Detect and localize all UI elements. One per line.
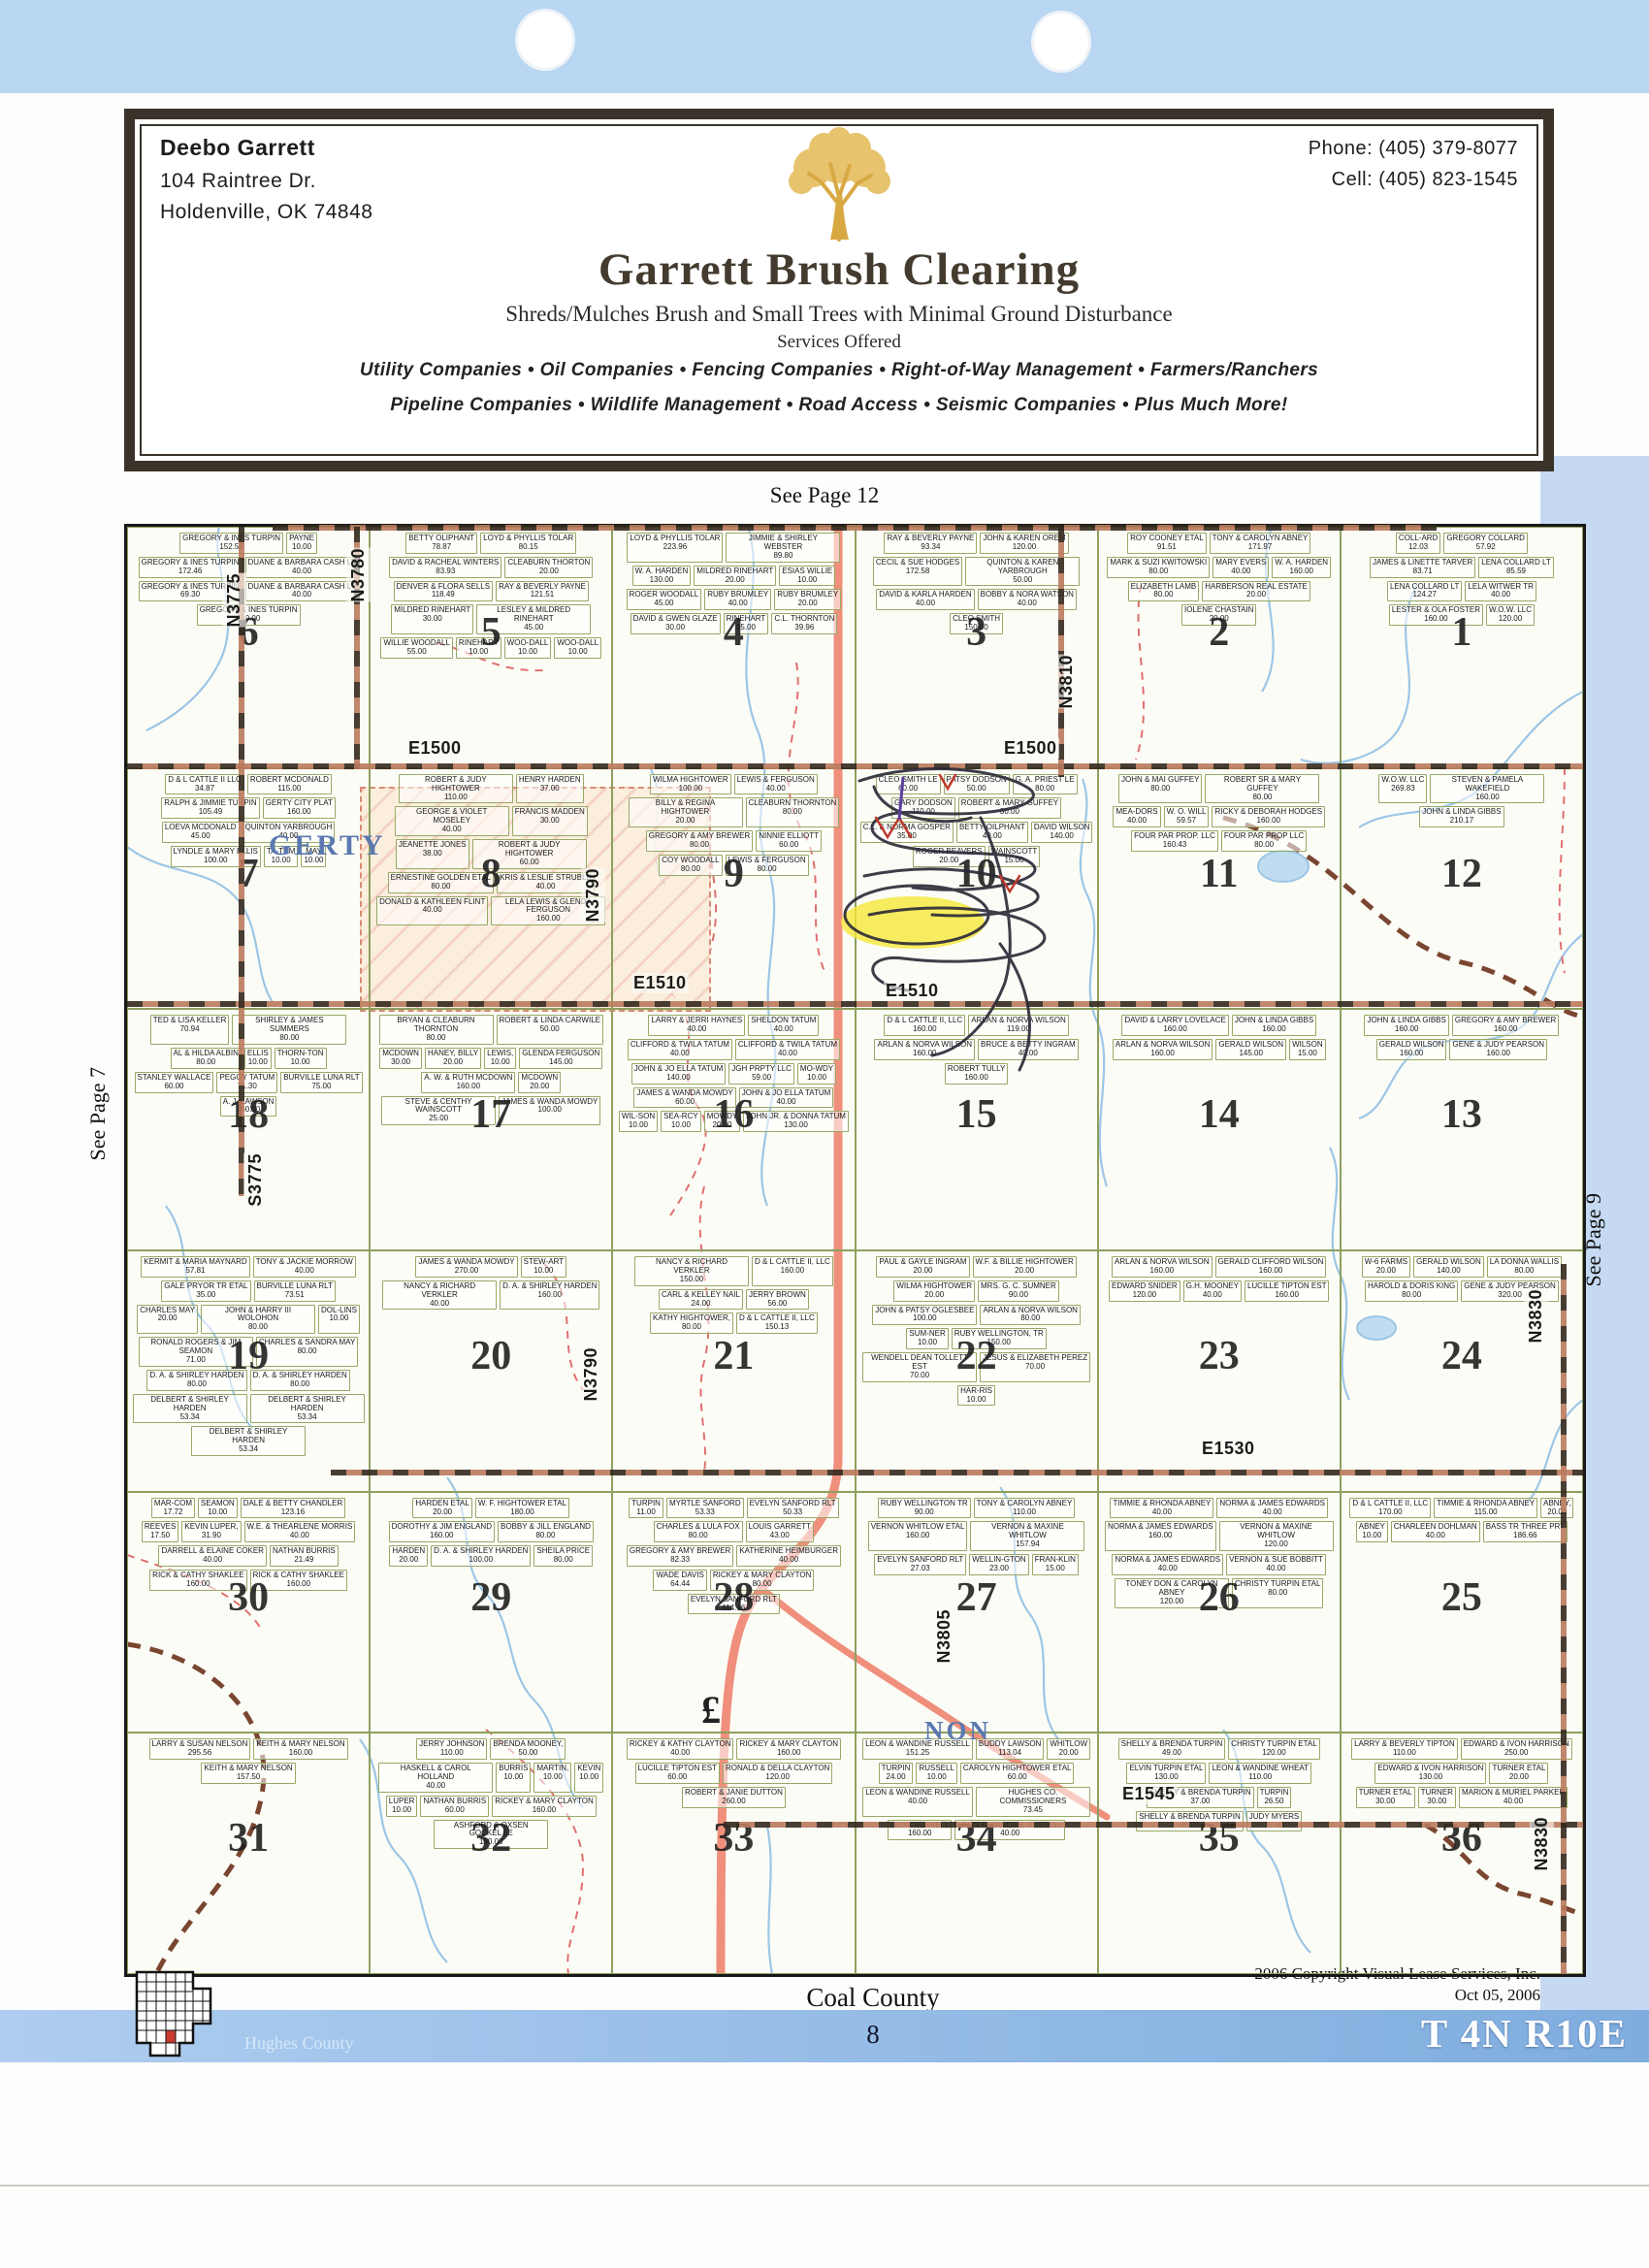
parcel-label: ASHFORD & OXSEN GOCKEL LE 180.00 <box>434 1820 548 1850</box>
parcel-label: MILDRED RINEHART 30.00 <box>391 604 473 634</box>
parcel-label: RALPH & JIMMIE TURPIN 105.49 <box>161 797 259 819</box>
parcel-acres: 17.50 <box>145 1532 176 1540</box>
parcel-label: HAR-RIS 10.00 <box>957 1385 995 1407</box>
parcel-acres: 10.00 <box>247 1058 269 1067</box>
parcel-acres: 40.00 <box>398 826 506 834</box>
parcel-label: REEVES 17.50 <box>142 1521 178 1542</box>
parcel-acres: 20.00 <box>1365 1267 1407 1276</box>
parcel-label: FRAN-KLIN 15.00 <box>1032 1554 1079 1575</box>
road-label: N3790 <box>581 868 605 923</box>
parcel-acres: 60.00 <box>879 785 938 794</box>
parcel-acres: 24.00 <box>882 1773 911 1782</box>
parcel-label: CLIFFORD & TWILA TATUM 40.00 <box>735 1039 840 1060</box>
parcel-acres: 160.00 <box>200 615 298 624</box>
parcel-acres: 140.00 <box>634 1074 724 1083</box>
parcel-label: DAVID WILSON 140.00 <box>1031 822 1093 843</box>
parcel-acres: 150.13 <box>739 1323 815 1332</box>
parcel-acres: 110.00 <box>402 794 510 802</box>
parcel-label: HARDEN 20.00 <box>389 1545 428 1567</box>
section-number: 20 <box>371 1333 611 1379</box>
parcel-label: MEA-DORS 40.00 <box>1113 806 1160 827</box>
parcel-label: RONALD & DELLA CLAYTON 120.00 <box>723 1763 832 1784</box>
parcel-label: KATHY HIGHTOWER, 80.00 <box>650 1312 733 1334</box>
parcel-acres: 39.96 <box>774 624 834 632</box>
parcel-acres: 110.00 <box>894 808 953 817</box>
parcel-acres: 160.00 <box>1433 794 1541 802</box>
parcel-label: BURVILLE LUNA RLT 73.51 <box>254 1280 336 1302</box>
parcel-acres: 210.17 <box>1422 817 1501 826</box>
parcel-label: JOHN JR. & DONNA TATUM 130.00 <box>743 1111 849 1132</box>
parcel-label: A. W. & RUTH McDOWN 160.00 <box>421 1072 515 1093</box>
parcel-acres: 160.00 <box>223 1106 275 1115</box>
parcel-label: GREGORY COLLARD 57.92 <box>1443 533 1528 554</box>
road-label: N3810 <box>1054 655 1079 709</box>
parcel-acres: 15.00 <box>1292 1050 1323 1058</box>
parcel-label: LUCILLE TIPTON EST 60.00 <box>635 1763 721 1784</box>
parcel-label: CLIFFORD & TWILA TATUM 40.00 <box>628 1039 732 1060</box>
parcel-acres: 20.00 <box>521 1083 558 1091</box>
parcel-label: McDOWN 30.00 <box>379 1048 422 1069</box>
parcel-acres: 100.00 <box>875 1314 974 1323</box>
parcel-acres: 160.43 <box>1134 841 1215 850</box>
road-label: N3805 <box>932 1609 956 1664</box>
parcel-label: FOUR PAR PROP LLC 80.00 <box>1221 830 1307 852</box>
parcel-acres: 40.00 <box>1215 567 1266 576</box>
road-label: N3775 <box>222 573 246 628</box>
parcel-acres: 30.00 <box>633 624 718 632</box>
parcel-owner: LESLEY & MILDRED RINEHART <box>479 606 588 624</box>
parcel-label: CAROLYN HIGHTOWER ETAL 60.00 <box>960 1763 1075 1784</box>
parcel-label: NANCY & RICHARD VERKLER 40.00 <box>382 1280 497 1311</box>
parcel-label: DARRELL & ELAINE COKER 40.00 <box>158 1545 267 1567</box>
road-line-n3810 <box>1058 527 1064 777</box>
parcel-label: RICKEY & KATHY CLAYTON 40.00 <box>627 1738 734 1760</box>
parcel-label: LOYD & PHYLLIS TOLAR 223.96 <box>627 533 723 563</box>
parcel-owner: NANCY & RICHARD VERKLER <box>385 1282 494 1300</box>
section-number: 23 <box>1099 1333 1340 1379</box>
parcel-label: D. A. & SHIRLEY HARDEN 80.00 <box>250 1370 350 1391</box>
parcel-label: D. A. & SHIRLEY HARDEN 80.00 <box>146 1370 246 1391</box>
parcel-acres: 295.56 <box>152 1749 248 1758</box>
parcel-acres: 40.00 <box>630 1050 729 1058</box>
section-cell: 34 LEON & WANDINE RUSSELL 151.25 BUDDY L… <box>856 1733 1098 1974</box>
ad-banner: Deebo Garrett 104 Raintree Dr. Holdenvil… <box>124 109 1554 471</box>
parcel-label: KEITH & MARY NELSON 160.00 <box>253 1738 347 1760</box>
parcel-label: LUPER 10.00 <box>386 1796 418 1817</box>
parcel-label: BOBBY & JILL ENGLAND 80.00 <box>498 1521 594 1542</box>
parcel-label: ARLAN & NORVA WILSON 160.00 <box>1112 1256 1212 1278</box>
parcel-acres: 20.00 <box>392 1556 425 1565</box>
parcel-acres: 35.00 <box>164 1291 247 1300</box>
parcel-acres: 80.00 <box>1110 567 1207 576</box>
parcel-label: W. F. HIGHTOWER ETAL 180.00 <box>475 1498 569 1519</box>
road-label: N3830 <box>1524 1289 1548 1344</box>
parcel-acres: 40.00 <box>1219 1508 1325 1517</box>
scan-artifact-line <box>0 2185 1649 2187</box>
parcel-acres: 100.00 <box>174 857 258 865</box>
parcel-acres: 40.00 <box>248 567 356 576</box>
page-number: 8 <box>815 2020 931 2050</box>
parcel-acres: 120.00 <box>1489 615 1532 624</box>
parcel-owner: BILLY & REGINA HIGHTOWER <box>631 799 740 817</box>
parcel-acres: 31.90 <box>184 1532 238 1540</box>
parcel-label: W. A. HARDEN 160.00 <box>1272 557 1331 578</box>
parcel-acres: 20.00 <box>1543 1508 1570 1517</box>
parcel-acres: 57.92 <box>1446 543 1525 552</box>
parcel-label: NORMA & JAMES EDWARDS 40.00 <box>1216 1498 1328 1519</box>
road-line-e1530 <box>331 1470 1583 1475</box>
parcel-label: RICKEY & MARY CLAYTON 160.00 <box>736 1738 841 1760</box>
parcel-acres: 150.00 <box>954 1339 1044 1347</box>
parcel-label: LARRY & JERRI HAYNES 40.00 <box>648 1015 745 1036</box>
parcel-label: CLEO SMITH 150.00 <box>950 613 1003 634</box>
parcel-owner: JOHN & HARRY III WOLOHON <box>204 1307 312 1324</box>
parcel-label: KERMIT & MARIA MAYNARD 57.81 <box>141 1256 249 1278</box>
parcel-acres: 75.00 <box>283 1083 359 1091</box>
section-cell: 20 JAMES & WANDA MOWDY 270.00 STEW-ART 1… <box>370 1250 612 1492</box>
parcel-acres: 160.00 <box>256 1749 344 1758</box>
parcel-acres: 40.00 <box>1229 1565 1323 1573</box>
parcel-label: RINEHART 10.00 <box>456 637 501 659</box>
road-label: E1545 <box>1120 1784 1178 1804</box>
parcel-acres: 160.00 <box>1115 1050 1211 1058</box>
parcel-acres: 80.00 <box>1368 1291 1455 1300</box>
parcel-acres: 80.00 <box>1016 785 1075 794</box>
parcel-acres: 71.00 <box>142 1356 250 1365</box>
parcel-acres: 85.59 <box>1481 567 1550 576</box>
parcel-label: HAROLD & DORIS KING 80.00 <box>1365 1280 1458 1302</box>
parcel-acres: 20.00 <box>896 1291 972 1300</box>
parcel-label: ABNEY, 20.00 <box>1540 1498 1573 1519</box>
parcel-acres: 82.33 <box>630 1556 730 1565</box>
section-cell: 25 D & L CATTLE II, LLC 170.00 TIMMIE & … <box>1341 1492 1583 1733</box>
parcel-acres: 160.00 <box>877 1050 972 1058</box>
parcel-acres: 45.00 <box>479 624 588 632</box>
parcel-label: DAVID & KARLA HARDEN 40.00 <box>876 589 974 610</box>
parcel-label: STEVEN & PAMELA WAKEFIELD 160.00 <box>1430 774 1544 804</box>
parcel-label: JOHN & LINDA GIBBS 210.17 <box>1419 806 1503 827</box>
parcel-acres: 80.00 <box>662 865 719 874</box>
parcel-acres: 56.00 <box>749 1300 806 1309</box>
road-label: E1530 <box>1200 1439 1257 1459</box>
parcel-acres: 50.00 <box>947 785 1007 794</box>
section-cell: 11 JOHN & MAI GUFFEY 80.00 ROBERT SR & M… <box>1098 768 1341 1010</box>
section-number: 15 <box>857 1091 1097 1138</box>
parcel-label: ROBERT & JUDY HIGHTOWER 60.00 <box>472 839 587 869</box>
parcel-label: WHITLOW 20.00 <box>1047 1738 1090 1760</box>
parcel-acres: 160.00 <box>739 1749 838 1758</box>
section-cell: 17 BRYAN & CLEABURN THORNTON 80.00 ROBER… <box>370 1009 612 1250</box>
parcel-label: DAVID & GWEN GLAZE 30.00 <box>630 613 721 634</box>
parcel-label: JAMES & WANDA MOWDY 100.00 <box>499 1096 600 1126</box>
parcel-acres: 45.00 <box>630 599 699 608</box>
parcel-acres: 80.15 <box>483 543 573 552</box>
parcel-acres: 160.00 <box>1124 1025 1226 1034</box>
parcel-acres: 151.25 <box>865 1749 970 1758</box>
section-cell: 16 LARRY & JERRI HAYNES 40.00 SHELDON TA… <box>612 1009 855 1250</box>
parcel-acres: 160.00 <box>1379 1050 1444 1058</box>
parcel-acres: 40.00 <box>381 1782 490 1791</box>
parcel-label: ROBERT TULLY 160.00 <box>945 1063 1008 1085</box>
ad-address-line1: 104 Raintree Dr. <box>160 166 372 198</box>
parcel-label: JOHN & PATSY OGLESBEE 100.00 <box>872 1305 977 1326</box>
parcel-acres: 160.00 <box>1367 1025 1445 1034</box>
section-cell: 14 DAVID & LARRY LOVELACE 160.00 JOHN & … <box>1098 1009 1341 1250</box>
parcel-acres: 57.81 <box>144 1267 246 1276</box>
parcel-acres: 140.00 <box>1416 1267 1481 1276</box>
parcel-label: JAMES & WANDA MOWDY 60.00 <box>633 1087 735 1109</box>
parcel-acres: 130.00 <box>635 576 689 585</box>
parcel-label: LA DONNA WALLIS 80.00 <box>1487 1256 1562 1278</box>
parcel-acres: 160.00 <box>392 1532 492 1540</box>
parcel-label: TIMMIE & RHONDA ABNEY 115.00 <box>1434 1498 1537 1519</box>
parcel-label: D & L CATTLE II, LLC 160.00 <box>884 1015 965 1036</box>
parcel-acres: 160.00 <box>1218 1267 1324 1276</box>
parcel-acres: 186.66 <box>1486 1532 1565 1540</box>
parcel-acres: 11.00 <box>631 1508 661 1517</box>
section-cell: 32 JERRY JOHNSON 110.00 BRENDA MOONEY, 5… <box>370 1733 612 1974</box>
parcel-label: KEITH & MARY NELSON 157.50 <box>201 1763 295 1784</box>
parcel-acres: 15.00 <box>727 624 766 632</box>
parcel-acres: 10.00 <box>800 1074 833 1083</box>
parcel-acres: 10.00 <box>960 1396 992 1405</box>
parcel-label: BETTY OILPHANT 40.00 <box>956 822 1028 843</box>
road-line-n3830 <box>1561 1264 1567 1974</box>
parcel-label: LEWIS, 10.00 <box>484 1048 516 1069</box>
parcel-owner: VERNON & MAXINE WHITLOW <box>1222 1523 1331 1540</box>
parcel-acres: 23.00 <box>972 1565 1025 1573</box>
see-page-top-link: See Page 12 <box>0 483 1649 508</box>
parcel-acres: 40.00 <box>651 1025 742 1034</box>
parcel-acres: 30.00 <box>1421 1798 1453 1806</box>
ad-contact-name: Deebo Garrett <box>160 131 372 166</box>
parcel-acres: 53.34 <box>136 1413 244 1422</box>
parcel-acres: 34.87 <box>168 785 242 794</box>
road-label: E1510 <box>631 973 689 993</box>
township-range-label: T 4N R10E <box>1421 2010 1628 2057</box>
parcel-label: LESLEY & MILDRED RINEHART 45.00 <box>476 604 591 634</box>
parcel-label: SHIRLEY & JAMES SUMMERS 80.00 <box>232 1015 346 1045</box>
parcel-label: ROBERT SR & MARY GUFFEY 80.00 <box>1205 774 1319 804</box>
parcel-label: WOO-DALL 10.00 <box>504 637 552 659</box>
parcel-acres: 40.00 <box>1462 1798 1565 1806</box>
parcel-acres: 91.51 <box>1130 543 1204 552</box>
parcel-acres: 80.00 <box>653 1323 730 1332</box>
parcel-acres: 80.00 <box>1208 794 1316 802</box>
parcel-acres: 40.00 <box>1115 1565 1220 1573</box>
parcel-label: MYRTLE SANFORD 53.33 <box>666 1498 744 1519</box>
parcel-owner: SHIRLEY & JAMES SUMMERS <box>235 1017 343 1034</box>
parcel-label: TONY & JACKIE MORROW 40.00 <box>253 1256 356 1278</box>
parcel-label: JEANETTE JONES 38.00 <box>396 839 469 869</box>
parcel-acres: 25.00 <box>384 1115 493 1123</box>
parcel-label: W.O.W. LLC 120.00 <box>1486 604 1535 626</box>
parcel-label: BILLY & REGINA HIGHTOWER 20.00 <box>629 797 743 827</box>
parcel-label: TURNER 30.00 <box>1418 1787 1456 1808</box>
parcel-acres: 130.00 <box>1377 1773 1483 1782</box>
copyright-line2: Oct 05, 2006 <box>1115 1985 1540 2006</box>
parcel-label: HARDEN ETAL 20.00 <box>412 1498 471 1519</box>
ad-tagline: Shreds/Mulches Brush and Small Trees wit… <box>135 302 1543 327</box>
parcel-acres: 20.00 <box>631 817 740 826</box>
parcel-label: CHRISTY TURPIN ETAL 120.00 <box>1228 1738 1319 1760</box>
parcel-acres: 80.00 <box>391 883 491 891</box>
parcel-label: CHRISTY TURPIN ETAL 80.00 <box>1232 1578 1323 1608</box>
parcel-label: ROY COONEY ETAL 91.51 <box>1127 533 1207 554</box>
parcel-label: WILLIE WOODALL 55.00 <box>380 637 452 659</box>
section-cell: 12 W.O.W. LLC 269.83 STEVEN & PAMELA WAK… <box>1341 768 1583 1010</box>
parcel-owner: BRYAN & CLEABURN THORNTON <box>382 1017 491 1034</box>
parcel-label: HENRY HARDEN 37.00 <box>516 774 584 804</box>
parcel-acres: 10.00 <box>507 648 549 657</box>
parcel-label: JOHN & LINDA GIBBS 160.00 <box>1232 1015 1316 1036</box>
parcel-label: ROGER BEAVERS 20.00 <box>913 846 986 867</box>
parcel-label: LEON & WANDINE RUSSELL 40.00 <box>862 1787 973 1817</box>
parcel-acres: 100.00 <box>653 785 728 794</box>
parcel-acres: 60.00 <box>638 1773 718 1782</box>
parcel-owner: HUGHES CO. COMMISSIONERS <box>979 1789 1087 1806</box>
parcel-label: LEWIS & FERGUSON 80.00 <box>726 855 809 876</box>
parcel-label: BURVILLE LUNA RLT 75.00 <box>280 1072 362 1093</box>
parcel-acres: 90.00 <box>981 1291 1056 1300</box>
parcel-label: VERNON WHITLOW ETAL 160.00 <box>868 1521 968 1551</box>
parcel-acres: 60.00 <box>963 1773 1072 1782</box>
punch-hole <box>518 12 572 68</box>
parcel-acres: 180.00 <box>436 1838 545 1847</box>
parcel-label: NANCY & RICHARD VERKLER 150.00 <box>634 1256 749 1286</box>
parcel-label: MRS. G. C. SUMNER 90.00 <box>978 1280 1059 1302</box>
parcel-acres: 80.00 <box>1121 785 1199 794</box>
parcel-label: WELLIN-GTON 23.00 <box>969 1554 1028 1575</box>
parcel-acres: 17.72 <box>154 1508 192 1517</box>
parcel-label: C.L. THORNTON 39.96 <box>771 613 837 634</box>
parcel-label: W.E. & THEARLENE MORRIS 40.00 <box>244 1521 356 1542</box>
parcel-label: ROBERT McDONALD 115.00 <box>247 774 332 795</box>
parcel-label: KEVIN 10.00 <box>574 1763 603 1793</box>
parcel-label: LUCILLE TIPTON EST 160.00 <box>1245 1280 1330 1302</box>
section-cell: 35 SHELLY & BRENDA TURPIN 49.00 CHRISTY … <box>1098 1733 1341 1974</box>
parcel-label: ROBERT & LINDA CARWILE 50.00 <box>497 1015 603 1045</box>
parcel-acres: 115.00 <box>250 785 329 794</box>
parcel-label: STEVE & CENTHY WAINSCOTT 25.00 <box>381 1096 496 1126</box>
parcel-acres: 160.00 <box>887 1025 962 1034</box>
parcel-label: RICKEY & MARY CLAYTON 80.00 <box>710 1570 815 1591</box>
parcel-label: A. J. LAWSON 160.00 <box>220 1096 277 1118</box>
parcel-acres: 20.00 <box>696 576 773 585</box>
parcel-label: JAMES & WANDA MOWDY 270.00 <box>415 1256 517 1278</box>
parcel-acres: 20.00 <box>1205 591 1308 599</box>
section-number: 31 <box>128 1815 369 1862</box>
road-line-e1510 <box>127 1001 1583 1007</box>
road-label: N3830 <box>1530 1817 1554 1871</box>
parcel-label: EDWARD SNIDER 120.00 <box>1109 1280 1180 1302</box>
township-grid: 6 GREGORY & INES TURPIN 152.51 PAYNE 10.… <box>127 527 1583 1974</box>
parcel-label: LARRY & BEVERLY TIPTON 110.00 <box>1351 1738 1458 1760</box>
town-label: GERTY <box>269 829 386 862</box>
parcel-owner: VERNON & MAXINE WHITLOW <box>973 1523 1082 1540</box>
parcel-acres: 120.00 <box>983 543 1065 552</box>
road-label: E1500 <box>406 738 464 759</box>
parcel-label: GREGORY & INES TURPIN 160.00 <box>197 604 301 626</box>
parcel-owner: GEORGE & VIOLET MOSELEY <box>398 808 506 826</box>
parcel-acres: 40.00 <box>865 1798 970 1806</box>
parcel-acres: 160.00 <box>871 1532 965 1540</box>
parcel-acres: 55.00 <box>383 648 449 657</box>
parcel-label: NATHAN BURRIS 21.49 <box>270 1545 339 1567</box>
parcel-label: W.O.W. LLC 269.83 <box>1378 774 1427 804</box>
section-cell: 5 BETTY OLIPHANT 78.87 LOYD & PHYLLIS TO… <box>370 527 612 768</box>
parcel-acres: 40.00 <box>959 832 1025 841</box>
road-line-e1545 <box>724 1822 1583 1828</box>
parcel-acres: 80.00 <box>1224 841 1304 850</box>
parcel-acres: 40.00 <box>707 599 768 608</box>
parcel-acres: 118.49 <box>397 591 490 599</box>
parcel-label: GLENDA FERGUSON 145.00 <box>519 1048 602 1069</box>
parcel-acres: 40.00 <box>161 1556 264 1565</box>
parcel-acres: 80.00 <box>204 1323 312 1332</box>
parcel-acres: 170.00 <box>1352 1508 1428 1517</box>
parcel-acres: 12.03 <box>1399 543 1438 552</box>
parcel-acres: 40.00 <box>742 1098 831 1107</box>
parcel-label: BRENDA MOONEY, 50.00 <box>490 1738 566 1760</box>
parcel-acres: 40.00 <box>1394 1532 1477 1540</box>
parcel-acres: 157.94 <box>973 1540 1082 1549</box>
parcel-label: KATHERINE HEIMBURGER 40.00 <box>736 1545 841 1567</box>
parcel-label: COY WOODALL 80.00 <box>659 855 722 876</box>
parcel-label: TED & LISA KELLER 70.94 <box>150 1015 230 1045</box>
parcel-label: ARLAN & NORVA WILSON 160.00 <box>1113 1039 1213 1060</box>
parcel-label: W.F. & BILLIE HIGHTOWER 20.00 <box>973 1256 1077 1278</box>
parcel-acres: 160.00 <box>1214 817 1322 826</box>
parcel-acres: 80.00 <box>983 1314 1078 1323</box>
parcel-label: ERNESTINE GOLDEN ETAL 80.00 <box>388 872 494 893</box>
parcel-label: TONY & CAROLYN ABNEY 110.00 <box>974 1498 1076 1519</box>
parcel-label: MARK & SUZI KWITOWSKI 80.00 <box>1107 557 1210 578</box>
parcel-label: GENE & JUDY PEARSON 160.00 <box>1449 1039 1547 1060</box>
parcel-acres: 45.00 <box>165 832 237 841</box>
parcel-acres: 26.50 <box>1260 1798 1289 1806</box>
parcel-label: CECIL & SUE HODGES 172.58 <box>873 557 962 587</box>
parcel-acres: 73.51 <box>257 1291 333 1300</box>
parcel-acres: 115.00 <box>1437 1508 1535 1517</box>
parcel-acres: 10.00 <box>622 1121 655 1130</box>
section-cell: 4 LOYD & PHYLLIS TOLAR 223.96 JIMMIE & S… <box>612 527 855 768</box>
parcel-label: GALE PRYOR TR ETAL 35.00 <box>161 1280 250 1302</box>
parcel-acres: 21.49 <box>273 1556 336 1565</box>
parcel-acres: 40.00 <box>385 1300 494 1309</box>
parcel-label: RINEHART 15.00 <box>724 613 769 634</box>
parcel-label: D & L CATTLE II, LLC 150.13 <box>736 1312 818 1334</box>
parcel-label: RUBY WELLINGTON, TR 150.00 <box>952 1328 1047 1349</box>
parcel-acres: 10.00 <box>782 576 832 585</box>
parcel-acres: 10.00 <box>557 648 598 657</box>
parcel-acres: 53.34 <box>253 1413 362 1422</box>
parcel-acres: 27.03 <box>877 1565 963 1573</box>
parcel-acres: 10.00 <box>536 1773 568 1782</box>
parcel-label: JOHN & LINDA GIBBS 160.00 <box>1364 1015 1448 1036</box>
parcel-owner: TONEY DON & CAROLYN ABNEY <box>1117 1580 1226 1598</box>
parcel-acres: 40.00 <box>739 1556 838 1565</box>
parcel-acres: 53.34 <box>194 1445 303 1454</box>
parcel-label: TIMMIE & RHONDA ABNEY 40.00 <box>1110 1498 1213 1519</box>
parcel-label: GREGORY & AMY BREWER 80.00 <box>646 830 753 852</box>
section-cell: 1 COLL-ARD 12.03 GREGORY COLLARD 57.92 J… <box>1341 527 1583 768</box>
ad-services-line2: Pipeline Companies • Wildlife Management… <box>135 395 1543 416</box>
parcel-label: WAINSCOTT 15.00 <box>988 846 1041 867</box>
parcel-label: HUGHES CO. COMMISSIONERS 73.45 <box>976 1787 1090 1817</box>
parcel-label: ELLIS 10.00 <box>244 1048 272 1069</box>
section-number: 29 <box>371 1574 611 1621</box>
